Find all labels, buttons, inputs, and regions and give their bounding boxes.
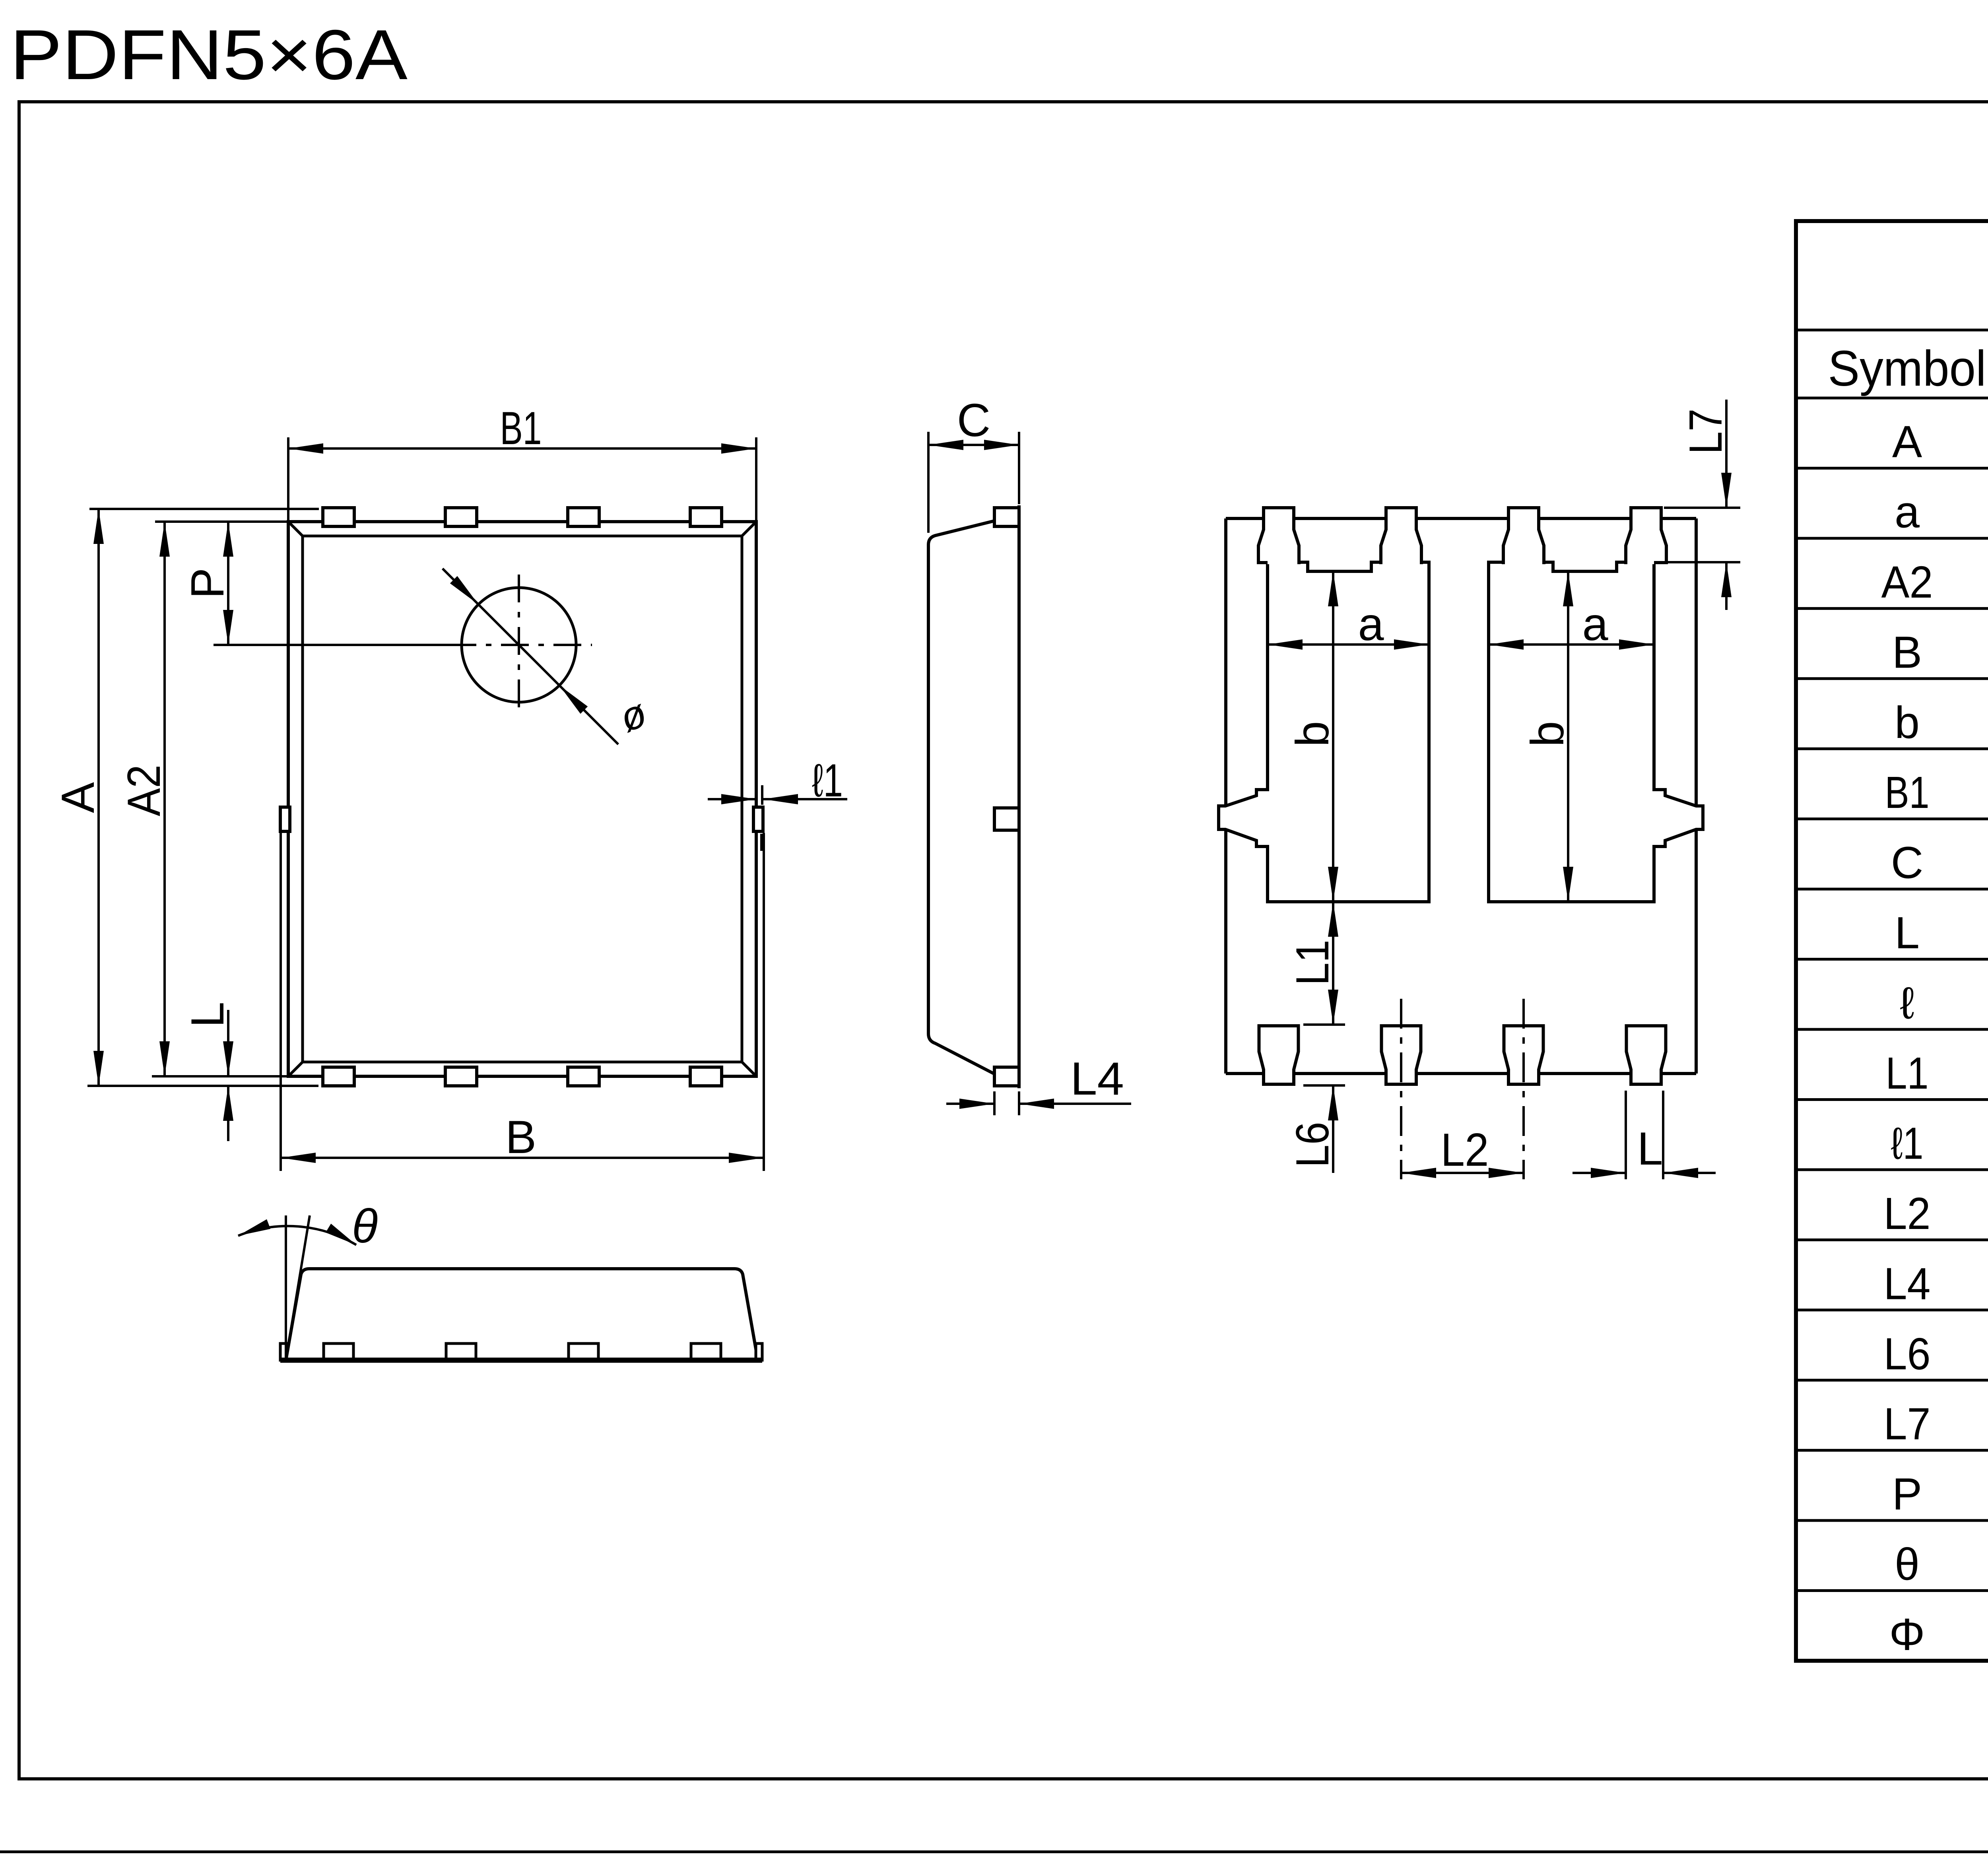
- svg-text:B: B: [505, 1111, 536, 1163]
- svg-text:L2: L2: [1441, 1124, 1489, 1176]
- svg-text:b: b: [1521, 721, 1573, 747]
- svg-text:b: b: [1895, 697, 1920, 747]
- svg-text:B: B: [1892, 627, 1922, 677]
- svg-text:A2: A2: [1881, 557, 1933, 607]
- svg-text:L2: L2: [1884, 1188, 1931, 1239]
- svg-text:Dimensions: Dimensions: [1986, 225, 1988, 275]
- svg-text:ℓ: ℓ: [1900, 978, 1914, 1028]
- svg-text:ℓ1: ℓ1: [812, 754, 843, 806]
- svg-text:L: L: [1895, 908, 1920, 958]
- svg-text:b: b: [1286, 721, 1338, 747]
- svg-text:A: A: [1892, 417, 1922, 467]
- svg-text:L4: L4: [1070, 1052, 1124, 1105]
- svg-text:L: L: [181, 1002, 233, 1027]
- svg-text:P: P: [181, 568, 233, 599]
- svg-text:B1: B1: [500, 402, 542, 454]
- svg-text:L1: L1: [1286, 940, 1338, 986]
- svg-text:A: A: [52, 782, 104, 813]
- svg-text:B1: B1: [1885, 767, 1930, 817]
- svg-text:C: C: [957, 394, 991, 446]
- svg-text:A2: A2: [118, 765, 170, 816]
- svg-text:ℓ1: ℓ1: [1891, 1118, 1924, 1168]
- svg-text:Symbol: Symbol: [1828, 340, 1986, 396]
- svg-text:L7: L7: [1679, 409, 1732, 454]
- svg-text:a: a: [1895, 487, 1920, 537]
- svg-text:θ: θ: [1895, 1539, 1920, 1589]
- svg-text:L4: L4: [1884, 1258, 1931, 1308]
- svg-text:L7: L7: [1884, 1399, 1931, 1449]
- svg-text:a: a: [1358, 598, 1384, 650]
- svg-text:C: C: [1891, 838, 1924, 888]
- svg-text:L6: L6: [1286, 1122, 1338, 1168]
- svg-text:Φ: Φ: [1889, 1609, 1925, 1660]
- svg-text:PDFN5×6A: PDFN5×6A: [10, 15, 408, 94]
- svg-text:a: a: [1582, 598, 1608, 650]
- svg-text:θ: θ: [352, 1200, 378, 1253]
- svg-text:L6: L6: [1884, 1329, 1931, 1379]
- svg-text:L: L: [1637, 1122, 1663, 1175]
- svg-text:P: P: [1892, 1469, 1922, 1519]
- svg-text:L1: L1: [1886, 1048, 1929, 1098]
